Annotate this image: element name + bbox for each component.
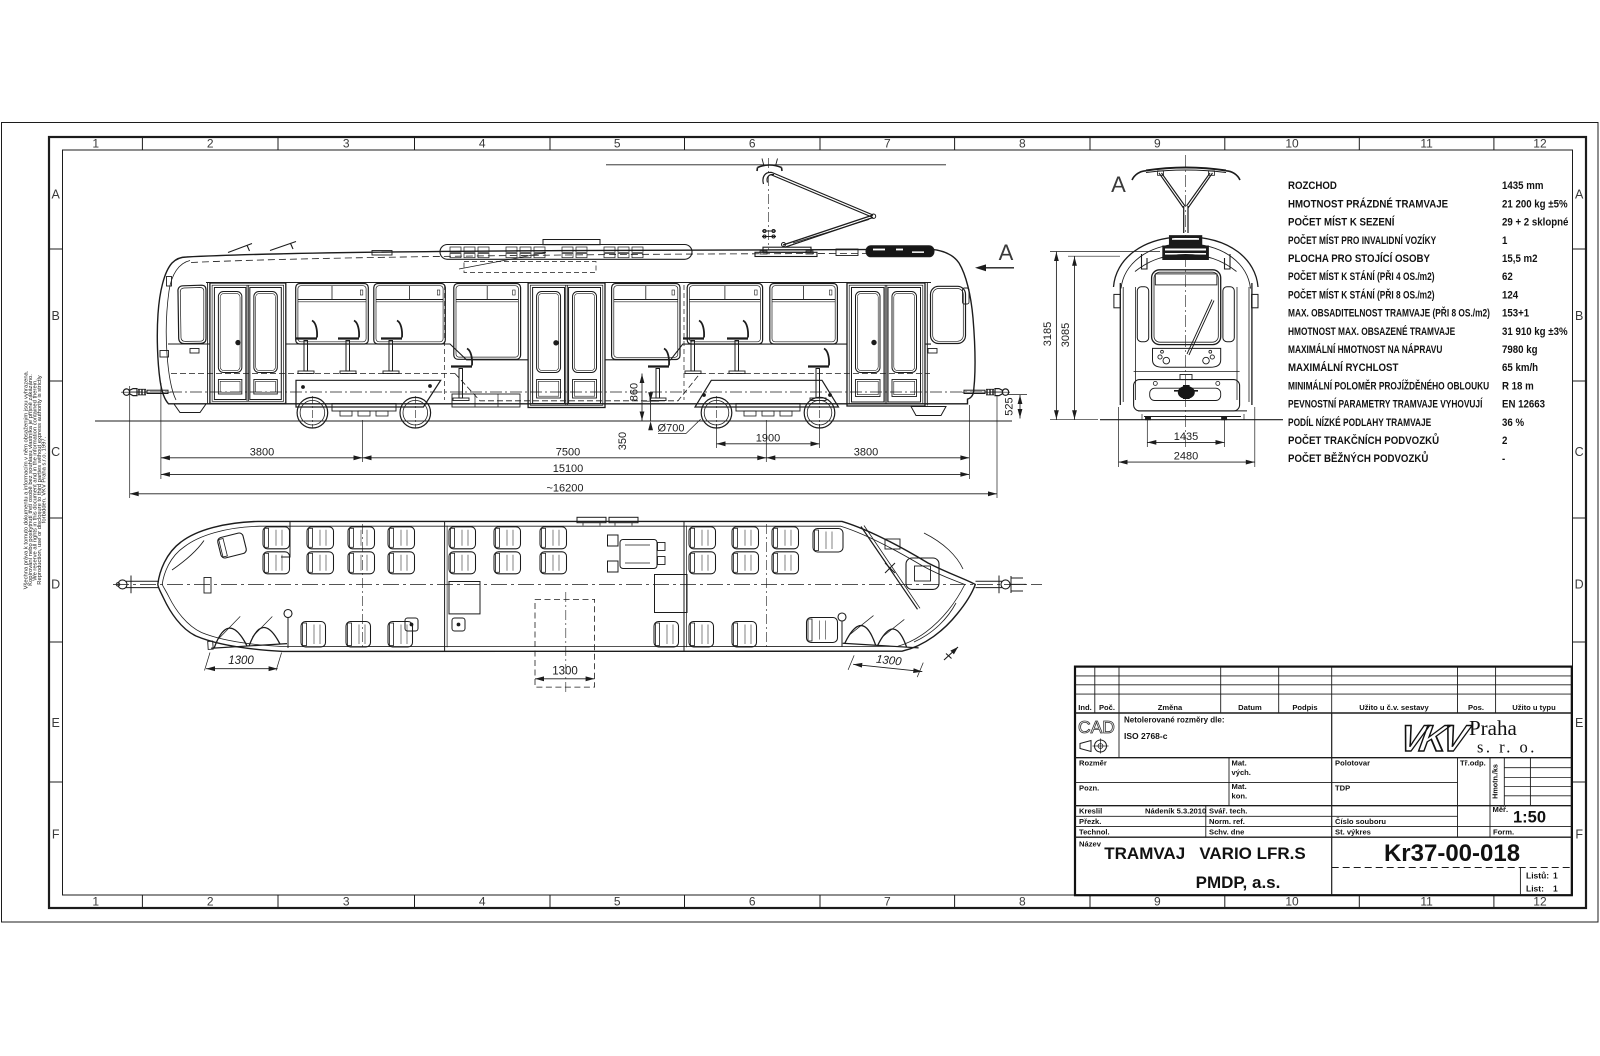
svg-text:Užito u typu: Užito u typu (1512, 703, 1556, 712)
svg-text:POČET BĚŽNÝCH PODVOZKŮ: POČET BĚŽNÝCH PODVOZKŮ (1288, 451, 1428, 466)
svg-text:Kreslil: Kreslil (1079, 807, 1102, 816)
svg-text:Mat.: Mat. (1232, 759, 1247, 768)
svg-text:TDP: TDP (1335, 784, 1350, 793)
svg-text:1300: 1300 (228, 655, 254, 667)
svg-text:4: 4 (479, 137, 486, 151)
svg-text:A: A (1111, 172, 1126, 197)
svg-text:1: 1 (92, 137, 99, 151)
svg-text:5: 5 (614, 895, 621, 909)
svg-text:POČET MÍST PRO INVALIDNÍ VOZÍK: POČET MÍST PRO INVALIDNÍ VOZÍKY (1288, 234, 1437, 248)
svg-text:Polotovar: Polotovar (1335, 759, 1370, 768)
svg-text:7980 kg: 7980 kg (1502, 345, 1538, 357)
svg-text:C: C (51, 445, 60, 459)
svg-text:POČET MÍST K STÁNÍ (PŘI 8 OS./: POČET MÍST K STÁNÍ (PŘI 8 OS./m2) (1288, 288, 1434, 302)
svg-text:F: F (52, 827, 60, 841)
svg-text:PODÍL NÍZKÉ PODLAHY TRAMVAJE: PODÍL NÍZKÉ PODLAHY TRAMVAJE (1288, 417, 1432, 429)
svg-text:MAXIMÁLNÍ HMOTNOST NA NÁPRAVU: MAXIMÁLNÍ HMOTNOST NA NÁPRAVU (1288, 344, 1442, 356)
svg-text:POČET MÍST K SEZENÍ: POČET MÍST K SEZENÍ (1288, 215, 1396, 229)
svg-text:Mat.: Mat. (1232, 782, 1247, 791)
svg-text:List:: List: (1526, 884, 1544, 894)
svg-text:~16200: ~16200 (546, 482, 583, 494)
svg-text:Nádeník 5.3.2010: Nádeník 5.3.2010 (1145, 807, 1206, 816)
svg-text:860: 860 (629, 383, 641, 401)
svg-text:Užito u č.v. sestavy: Užito u č.v. sestavy (1359, 703, 1429, 712)
svg-text:3085: 3085 (1060, 323, 1072, 347)
svg-text:1: 1 (92, 895, 99, 909)
svg-text:Pos.: Pos. (1468, 703, 1484, 712)
svg-text:kon.: kon. (1232, 792, 1248, 801)
svg-text:8: 8 (1019, 895, 1026, 909)
svg-text:5: 5 (614, 137, 621, 151)
svg-text:R 18 m: R 18 m (1502, 381, 1534, 393)
svg-text:F: F (1575, 827, 1583, 841)
svg-text:s. r. o.: s. r. o. (1477, 738, 1537, 757)
svg-text:Datum: Datum (1238, 703, 1262, 712)
svg-text:Technol.: Technol. (1079, 828, 1110, 837)
svg-text:124: 124 (1502, 290, 1518, 302)
svg-text:Číslo souboru: Číslo souboru (1335, 817, 1386, 826)
svg-text:525: 525 (1004, 397, 1016, 415)
svg-text:3: 3 (343, 895, 350, 909)
svg-text:Netolerované rozměry dle:: Netolerované rozměry dle: (1124, 716, 1224, 725)
svg-text:MAXIMÁLNÍ RYCHLOST: MAXIMÁLNÍ RYCHLOST (1288, 361, 1399, 375)
svg-text:1: 1 (1553, 871, 1558, 881)
svg-text:Změna: Změna (1158, 703, 1183, 712)
svg-text:ROZCHOD: ROZCHOD (1288, 181, 1337, 193)
svg-text:forbidden. VKV Praha s.r.o. 19: forbidden. VKV Praha s.r.o. 1997. (42, 436, 48, 523)
svg-text:8: 8 (1019, 137, 1026, 151)
svg-text:Hmotn./ks: Hmotn./ks (1491, 764, 1500, 799)
svg-text:E: E (1575, 716, 1583, 730)
svg-text:3800: 3800 (250, 446, 274, 458)
svg-text:6: 6 (749, 895, 756, 909)
svg-text:12: 12 (1533, 895, 1547, 909)
svg-text:POČET MÍST K STÁNÍ (PŘI 4 OS./: POČET MÍST K STÁNÍ (PŘI 4 OS./m2) (1288, 270, 1434, 284)
svg-text:Přezk.: Přezk. (1079, 817, 1101, 826)
svg-text:10: 10 (1285, 137, 1299, 151)
svg-text:St. výkres: St. výkres (1335, 828, 1371, 837)
svg-text:3185: 3185 (1042, 322, 1054, 346)
svg-text:A: A (52, 188, 61, 202)
svg-text:Listů:: Listů: (1526, 871, 1549, 881)
svg-text:2: 2 (207, 137, 214, 151)
svg-text:21 200 kg ±5%: 21 200 kg ±5% (1502, 199, 1568, 211)
svg-text:E: E (52, 716, 60, 730)
svg-text:CAD: CAD (1078, 717, 1115, 737)
svg-text:1435: 1435 (1174, 431, 1198, 443)
svg-text:12: 12 (1533, 137, 1547, 151)
svg-text:2: 2 (1502, 436, 1508, 448)
svg-text:7500: 7500 (556, 446, 580, 458)
svg-text:C: C (1575, 445, 1584, 459)
svg-text:2480: 2480 (1174, 451, 1198, 463)
svg-text:vých.: vých. (1232, 768, 1251, 777)
svg-text:A: A (1575, 188, 1584, 202)
svg-text:Rozměr: Rozměr (1079, 759, 1107, 768)
svg-text:Pozn.: Pozn. (1079, 784, 1099, 793)
svg-text:29 + 2 sklopné: 29 + 2 sklopné (1502, 217, 1569, 229)
svg-text:1: 1 (1502, 235, 1508, 247)
svg-text:36 %: 36 % (1502, 417, 1524, 429)
svg-text:2: 2 (207, 895, 214, 909)
svg-text:MAX. OBSADITELNOST TRAMVAJE (P: MAX. OBSADITELNOST TRAMVAJE (PŘI 8 OS./m… (1288, 306, 1490, 320)
svg-text:Měř.: Měř. (1493, 805, 1509, 814)
svg-text:D: D (51, 578, 60, 592)
svg-text:7: 7 (884, 137, 891, 151)
svg-text:3: 3 (343, 137, 350, 151)
svg-text:EN 12663: EN 12663 (1502, 399, 1545, 411)
svg-text:4: 4 (479, 895, 486, 909)
svg-text:1435 mm: 1435 mm (1502, 181, 1543, 193)
svg-text:1: 1 (1553, 884, 1558, 894)
svg-text:B: B (52, 309, 60, 323)
svg-text:Schv. dne: Schv. dne (1209, 828, 1244, 837)
svg-text:7: 7 (884, 895, 891, 909)
svg-text:Form.: Form. (1493, 828, 1514, 837)
svg-text:Název: Název (1079, 840, 1102, 849)
svg-text:350: 350 (617, 432, 629, 450)
svg-text:Ind.: Ind. (1078, 703, 1092, 712)
svg-text:11: 11 (1420, 137, 1433, 151)
svg-text:Tř.odp.: Tř.odp. (1460, 759, 1486, 768)
svg-text:Praha: Praha (1469, 716, 1517, 740)
svg-text:153+1: 153+1 (1502, 308, 1529, 320)
svg-text:9: 9 (1154, 895, 1161, 909)
svg-text:Podpis: Podpis (1292, 703, 1317, 712)
svg-text:B: B (1575, 309, 1583, 323)
svg-text:10: 10 (1285, 895, 1299, 909)
svg-text:PMDP, a.s.: PMDP, a.s. (1196, 873, 1281, 892)
svg-text:6: 6 (749, 137, 756, 151)
svg-text:D: D (1575, 578, 1584, 592)
svg-text:PLOCHA PRO STOJÍCÍ OSOBY: PLOCHA PRO STOJÍCÍ OSOBY (1288, 251, 1430, 265)
svg-text:A: A (999, 240, 1014, 265)
svg-text:Ø700: Ø700 (658, 423, 685, 435)
svg-text:65 km/h: 65 km/h (1502, 363, 1538, 375)
svg-text:-: - (1502, 454, 1506, 466)
svg-text:9: 9 (1154, 137, 1161, 151)
svg-text:ISO 2768-c: ISO 2768-c (1124, 731, 1168, 741)
svg-text:1900: 1900 (756, 432, 780, 444)
svg-text:Svář. tech.: Svář. tech. (1209, 807, 1247, 816)
svg-text:Norm. ref.: Norm. ref. (1209, 817, 1245, 826)
svg-text:1:50: 1:50 (1513, 809, 1546, 827)
svg-text:Poč.: Poč. (1099, 703, 1115, 712)
svg-text:HMOTNOST PRÁZDNÉ TRAMVAJE: HMOTNOST PRÁZDNÉ TRAMVAJE (1288, 197, 1448, 211)
svg-text:PEVNOSTNÍ PARAMETRY TRAMVAJE V: PEVNOSTNÍ PARAMETRY TRAMVAJE VYHOVUJÍ (1288, 399, 1483, 411)
svg-text:15,5 m2: 15,5 m2 (1502, 254, 1538, 266)
svg-text:HMOTNOST MAX. OBSAZENÉ TRAMVAJ: HMOTNOST MAX. OBSAZENÉ TRAMVAJE (1288, 326, 1456, 338)
svg-text:15100: 15100 (553, 463, 584, 475)
svg-text:1300: 1300 (552, 666, 578, 678)
svg-text:62: 62 (1502, 272, 1513, 284)
svg-text:31 910 kg ±3%: 31 910 kg ±3% (1502, 326, 1568, 338)
svg-text:3800: 3800 (854, 446, 878, 458)
svg-text:TRAMVAJ VARIO LFR.S: TRAMVAJ VARIO LFR.S (1104, 844, 1306, 863)
svg-text:MINIMÁLNÍ POLOMĚR PROJÍŽDĚNÉHO: MINIMÁLNÍ POLOMĚR PROJÍŽDĚNÉHO OBLOUKU (1288, 379, 1489, 393)
svg-text:11: 11 (1420, 895, 1433, 909)
svg-text:POČET TRAKČNÍCH PODVOZKŮ: POČET TRAKČNÍCH PODVOZKŮ (1288, 432, 1439, 447)
svg-text:Kr37-00-018: Kr37-00-018 (1384, 840, 1520, 867)
